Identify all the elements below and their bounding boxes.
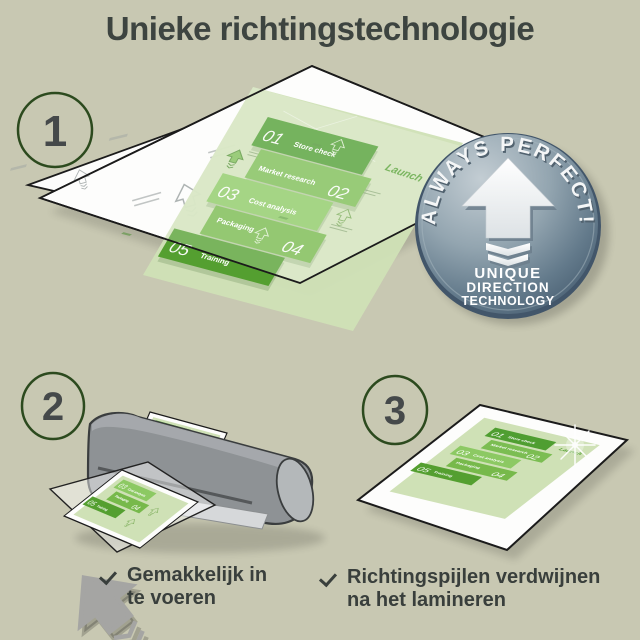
shine-sparkle-icon bbox=[555, 425, 595, 465]
badge-line2: DIRECTION bbox=[466, 280, 549, 295]
step1-number: 1 bbox=[43, 107, 67, 156]
caption-arrows-disappear: Richtingspijlen verdwijnenna het laminer… bbox=[320, 566, 600, 612]
caption-easy-feed-text: Gemakkelijk inte voeren bbox=[127, 564, 267, 610]
step2-number: 2 bbox=[42, 385, 64, 429]
caption-arrows-disappear-text: Richtingspijlen verdwijnenna het laminer… bbox=[347, 566, 600, 612]
infographic-page: { "title": "Unieke richtingstechnologie"… bbox=[0, 0, 640, 640]
always-perfect-badge: ALWAYS PERFECT! ALWAYS PERFECT! UNIQUE D… bbox=[415, 133, 609, 325]
scene-graphic: 1 01 Store check bbox=[0, 0, 640, 640]
caption-easy-feed: Gemakkelijk inte voeren bbox=[100, 564, 267, 610]
step3-scene: 3 01 Store check Market research 02 03 C… bbox=[358, 376, 635, 560]
check-icon bbox=[319, 569, 337, 588]
badge-line3: TECHNOLOGY bbox=[461, 294, 554, 308]
check-icon bbox=[99, 567, 117, 586]
step3-number: 3 bbox=[384, 389, 406, 433]
